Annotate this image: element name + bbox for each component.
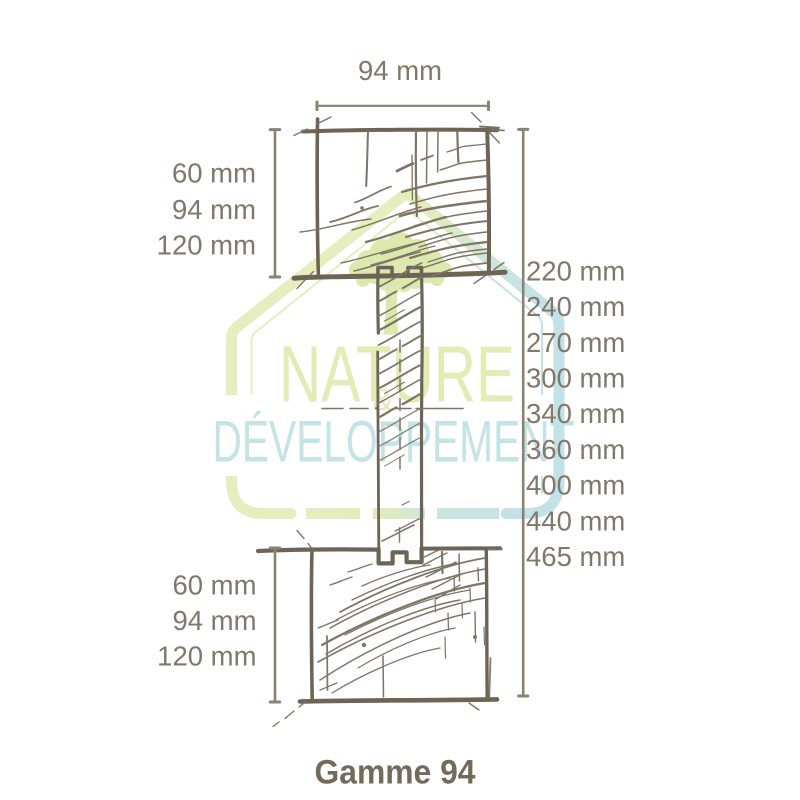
svg-text:60 mm: 60 mm: [172, 157, 256, 188]
svg-text:94 mm: 94 mm: [172, 194, 256, 225]
svg-text:440 mm: 440 mm: [526, 505, 625, 536]
svg-text:94 mm: 94 mm: [172, 605, 256, 636]
svg-text:120 mm: 120 mm: [157, 229, 256, 260]
svg-text:360 mm: 360 mm: [526, 434, 625, 465]
svg-text:400 mm: 400 mm: [526, 470, 625, 501]
svg-text:340 mm: 340 mm: [526, 398, 625, 429]
svg-text:60 mm: 60 mm: [172, 570, 256, 601]
svg-text:270 mm: 270 mm: [526, 327, 625, 358]
svg-text:NATURE: NATURE: [279, 330, 515, 419]
svg-text:220 mm: 220 mm: [526, 255, 625, 286]
svg-text:Gamme 94: Gamme 94: [315, 754, 476, 792]
svg-text:240 mm: 240 mm: [526, 291, 625, 322]
svg-text:300 mm: 300 mm: [526, 363, 625, 394]
svg-text:94 mm: 94 mm: [358, 55, 442, 86]
svg-text:465 mm: 465 mm: [526, 541, 625, 572]
svg-text:120 mm: 120 mm: [157, 640, 256, 671]
svg-text:DÉVELOPPEMENT: DÉVELOPPEMENT: [213, 410, 575, 475]
